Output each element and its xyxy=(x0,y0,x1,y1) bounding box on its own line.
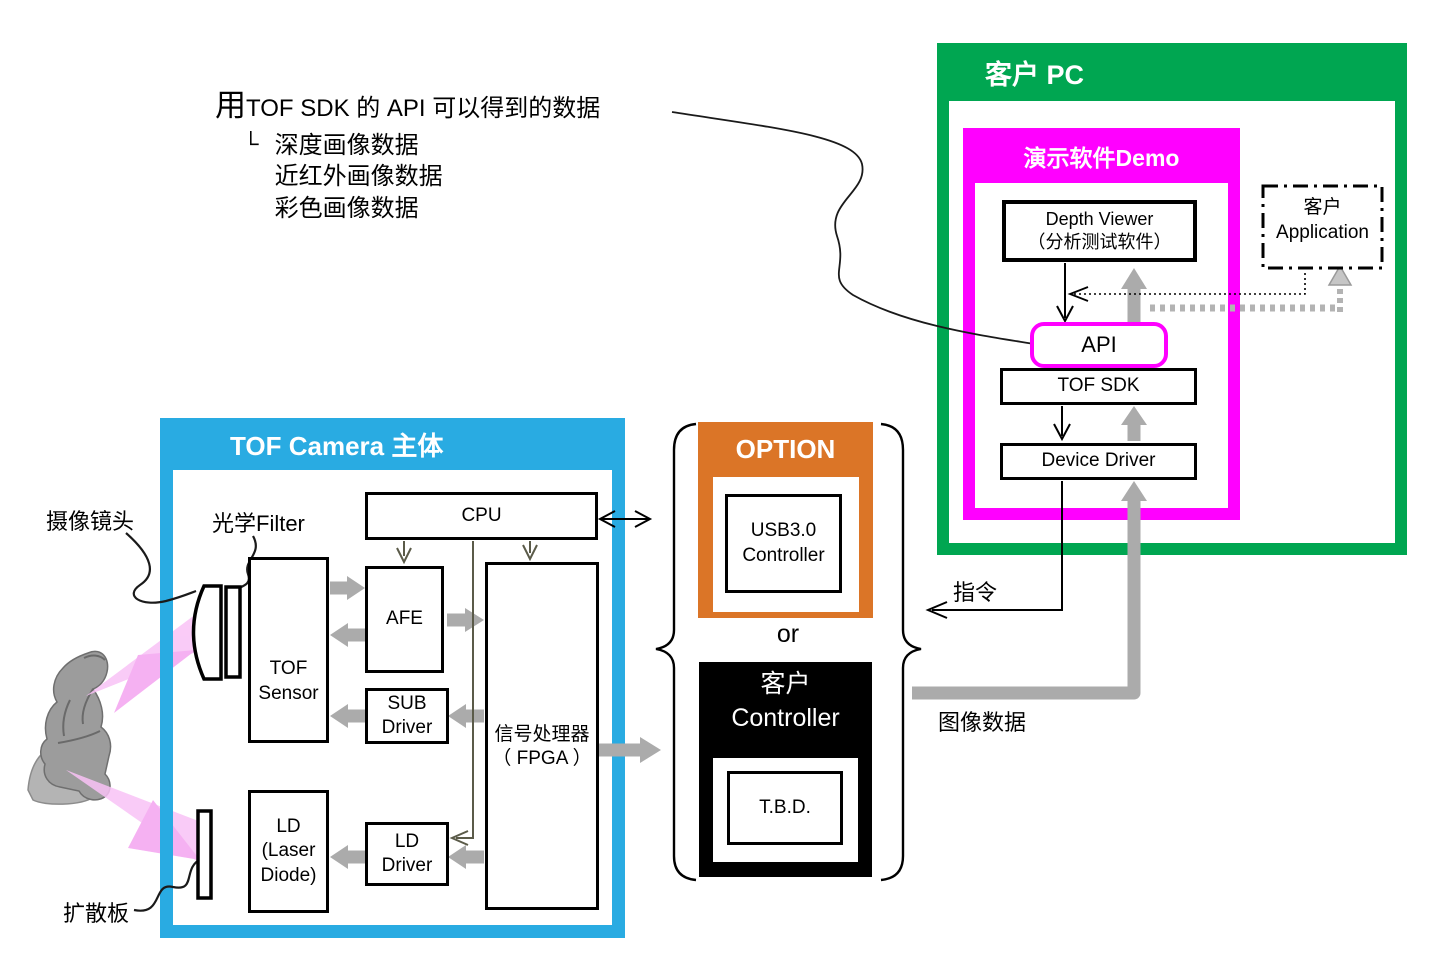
thinker-statue xyxy=(28,651,111,804)
depth-viewer-line2: （分析测试软件） xyxy=(1028,231,1172,254)
customer-controller-title-line1: 客户 xyxy=(699,668,872,702)
ld-driver-line2: Driver xyxy=(382,854,433,878)
ld-box: LD (Laser Diode) xyxy=(248,790,329,913)
ld-line2: (Laser xyxy=(262,839,316,863)
optical-filter-label: 光学Filter xyxy=(212,506,305,538)
fpga-line1: 信号处理器 xyxy=(494,723,589,747)
device-driver-box: Device Driver xyxy=(1000,443,1197,480)
usb-controller-box: USB3.0 Controller xyxy=(725,494,842,593)
customer-app-line2: Application xyxy=(1263,221,1382,246)
annotation-items: 深度画像数据 近红外画像数据 彩色画像数据 xyxy=(275,130,443,224)
image-data-label: 图像数据 xyxy=(938,705,1026,737)
ld-line1: LD xyxy=(276,815,300,839)
customer-controller-title-line2: Controller xyxy=(699,702,872,736)
diagram-canvas: 客户 PC 演示软件Demo TOF Camera 主体 OPTION 客户 C… xyxy=(0,0,1438,958)
api-box: API xyxy=(1030,322,1168,368)
fpga-box: 信号处理器 （ FPGA ） xyxy=(485,562,599,910)
ld-line3: Diode) xyxy=(261,864,317,888)
annotation-line1-big: 用 xyxy=(215,86,246,126)
tof-sensor-line1: TOF xyxy=(270,657,308,681)
annotation-line1: 用 TOF SDK 的 API 可以得到的数据 xyxy=(215,86,600,126)
annotation-item: 彩色画像数据 xyxy=(275,193,443,224)
customer-pc-title: 客户 PC xyxy=(937,43,1407,101)
api-data-annotation: 用 TOF SDK 的 API 可以得到的数据 └ 深度画像数据 近红外画像数据… xyxy=(215,86,600,224)
camera-lens-label: 摄像镜头 xyxy=(46,504,134,536)
annotation-line1-rest: TOF SDK 的 API 可以得到的数据 xyxy=(246,93,600,124)
tof-camera-title: TOF Camera 主体 xyxy=(160,418,625,470)
sub-driver-box: SUB Driver xyxy=(365,688,449,744)
tof-sensor-box: TOF Sensor xyxy=(248,557,329,743)
command-label: 指令 xyxy=(953,575,997,607)
annotation-tree-glyph: └ xyxy=(243,130,259,224)
customer-controller-title: 客户 Controller xyxy=(699,668,872,736)
diffuser-label: 扩散板 xyxy=(63,896,129,928)
fpga-line2: （ FPGA ） xyxy=(492,747,591,771)
annotation-tree: └ 深度画像数据 近红外画像数据 彩色画像数据 xyxy=(243,130,600,224)
annotation-item: 深度画像数据 xyxy=(275,130,443,161)
ld-driver-box: LD Driver xyxy=(365,822,449,886)
customer-app-box: 客户 Application xyxy=(1263,196,1382,245)
annotation-item: 近红外画像数据 xyxy=(275,161,443,192)
ld-driver-line1: LD xyxy=(395,830,419,854)
or-label: or xyxy=(763,620,813,649)
option-title: OPTION xyxy=(698,422,873,477)
customer-app-line1: 客户 xyxy=(1263,196,1382,221)
tof-sdk-box: TOF SDK xyxy=(1000,368,1197,405)
sub-driver-line1: SUB xyxy=(387,692,426,716)
tof-sensor-line2: Sensor xyxy=(258,682,318,706)
depth-viewer-line1: Depth Viewer xyxy=(1046,208,1154,231)
demo-software-title: 演示软件Demo xyxy=(963,128,1240,183)
afe-box: AFE xyxy=(365,566,444,673)
cpu-box: CPU xyxy=(365,492,598,540)
tbd-box: T.B.D. xyxy=(727,771,843,845)
depth-viewer-box: Depth Viewer （分析测试软件） xyxy=(1002,200,1197,262)
sub-driver-line2: Driver xyxy=(382,716,433,740)
usb-line2: Controller xyxy=(742,544,824,568)
usb-line1: USB3.0 xyxy=(751,519,816,543)
